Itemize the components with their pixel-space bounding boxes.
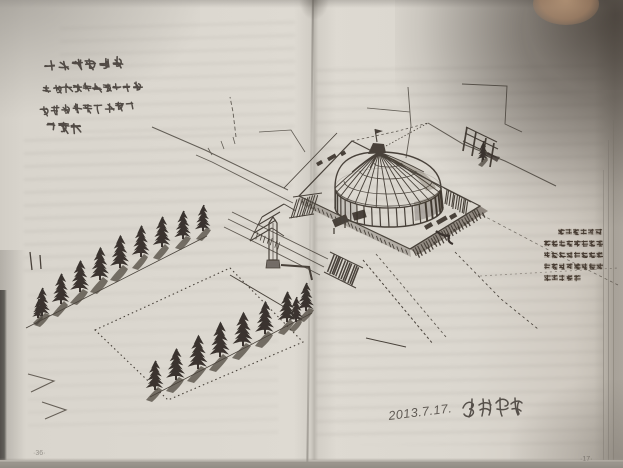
svg-text:·36·: ·36· xyxy=(33,450,45,457)
svg-text:2013.7.17.: 2013.7.17. xyxy=(387,401,453,423)
